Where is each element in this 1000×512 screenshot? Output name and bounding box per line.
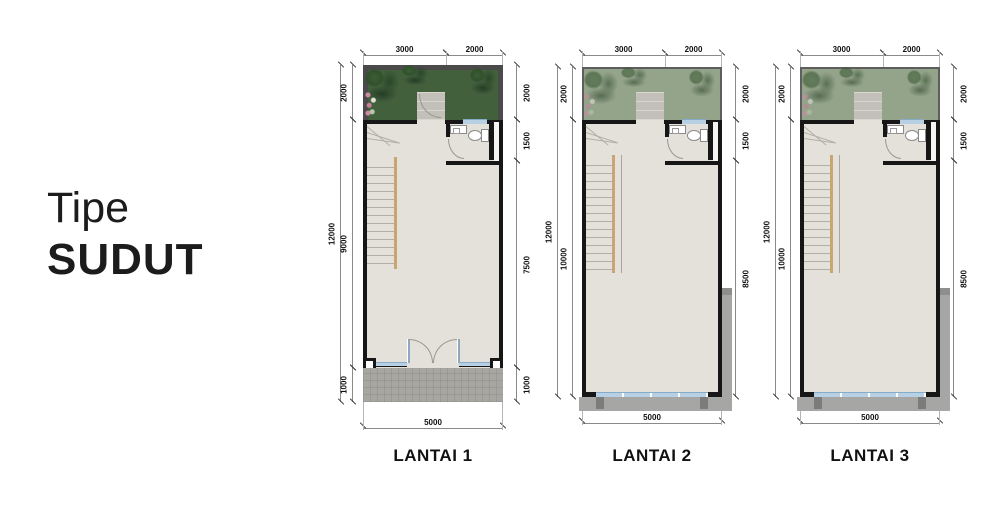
toilet-icon <box>468 130 482 141</box>
dim-left-2000: 2000 <box>572 67 573 120</box>
window <box>814 392 926 397</box>
tree-icon <box>836 65 868 89</box>
stairs <box>586 158 612 270</box>
window <box>459 362 490 366</box>
dim-top-2000: 2000 <box>665 55 722 56</box>
window <box>463 119 487 124</box>
dim-left-1000: 1000 <box>352 368 353 402</box>
floorplan-sheet: Tipe SUDUT 3000 2000 12000 2000 9000 100… <box>0 0 1000 512</box>
extension-line <box>883 51 884 67</box>
bottom-wall <box>800 392 814 397</box>
title-line-1: Tipe <box>47 183 204 234</box>
shaft <box>931 122 936 161</box>
stairs-winders <box>367 124 394 160</box>
column <box>700 397 708 409</box>
dim-left-10000: 10000 <box>572 120 573 397</box>
side-ledge-cap <box>940 288 950 295</box>
dim-right-2000: 2000 <box>735 67 736 120</box>
dim-left-10000: 10000 <box>790 120 791 397</box>
extension-line <box>363 51 364 65</box>
extension-line <box>721 51 722 67</box>
dim-right-2000: 2000 <box>516 65 517 120</box>
bathroom-wall <box>665 161 722 165</box>
extension-line <box>502 402 503 430</box>
sink-icon <box>669 125 686 134</box>
stair-edge <box>839 155 840 273</box>
window <box>900 119 924 124</box>
bathroom-wall <box>926 122 931 160</box>
window <box>682 119 706 124</box>
side-ledge-cap <box>722 288 732 295</box>
bottom-wall <box>582 392 596 397</box>
tree-icon <box>618 65 650 89</box>
bottom-wall <box>708 392 722 397</box>
floor-plan-lantai-3: 3000 2000 12000 2000 10000 2000 1500 850… <box>800 67 940 397</box>
dim-top-2000: 2000 <box>883 55 940 56</box>
dim-right-1000: 1000 <box>516 368 517 402</box>
sink-icon <box>887 125 904 134</box>
toilet-tank-icon <box>918 129 926 142</box>
flower-icon <box>584 93 596 117</box>
entry-porch <box>636 92 664 120</box>
dim-left-12000: 12000 <box>557 67 558 397</box>
dim-bottom-5000: 5000 <box>363 428 503 429</box>
dim-right-1500: 1500 <box>516 120 517 161</box>
dim-right-7500: 7500 <box>516 161 517 368</box>
side-ledge <box>722 288 732 411</box>
window <box>596 392 708 397</box>
plan-label: LANTAI 1 <box>343 446 523 466</box>
stair-stringer <box>830 155 833 273</box>
bathroom-wall <box>883 161 940 165</box>
stair-edge <box>621 155 622 273</box>
shaft <box>713 122 718 161</box>
side-ledge <box>940 288 950 411</box>
dim-left-9000: 9000 <box>352 120 353 368</box>
bottom-wall <box>926 392 940 397</box>
toilet-icon <box>687 130 701 141</box>
extension-line <box>939 51 940 67</box>
column <box>918 397 926 409</box>
column <box>596 397 604 409</box>
flower-icon <box>365 91 377 117</box>
extension-line <box>665 51 666 67</box>
floor-plan-lantai-1: 3000 2000 12000 2000 9000 1000 2000 1500… <box>363 65 503 402</box>
toilet-tank-icon <box>481 129 489 142</box>
door-leaf <box>457 339 460 363</box>
stairs-winders <box>804 124 830 158</box>
plan-label: LANTAI 2 <box>562 446 742 466</box>
stairs <box>804 158 830 270</box>
dim-right-8500: 8500 <box>735 161 736 397</box>
dim-top-3000: 3000 <box>363 55 446 56</box>
tree-icon <box>467 65 499 97</box>
title-line-2: SUDUT <box>47 234 204 286</box>
dim-right-1500: 1500 <box>953 120 954 161</box>
extension-line <box>363 402 364 430</box>
flower-icon <box>802 93 814 117</box>
tree-icon <box>904 67 936 99</box>
bathroom-wall <box>708 122 713 160</box>
entry-porch <box>854 92 882 120</box>
stair-stringer <box>612 155 615 273</box>
dim-left-2000: 2000 <box>790 67 791 120</box>
extension-line <box>502 51 503 65</box>
sink-icon <box>450 125 467 134</box>
stair-stringer <box>394 157 397 269</box>
window <box>376 362 407 366</box>
shaft <box>494 122 499 161</box>
dim-left-12000: 12000 <box>775 67 776 397</box>
right-wall <box>499 120 503 368</box>
column <box>814 397 822 409</box>
toilet-tank-icon <box>700 129 708 142</box>
dim-top-2000: 2000 <box>446 55 503 56</box>
front-pavement <box>363 368 503 402</box>
plan-label: LANTAI 3 <box>780 446 960 466</box>
page-title: Tipe SUDUT <box>47 183 204 286</box>
extension-line <box>446 51 447 65</box>
dim-left-12000: 12000 <box>340 65 341 402</box>
dim-top-3000: 3000 <box>582 55 665 56</box>
dim-right-8500: 8500 <box>953 161 954 397</box>
tree-icon <box>686 67 718 99</box>
dim-bottom-5000: 5000 <box>582 423 722 424</box>
extension-line <box>800 51 801 67</box>
bathroom-wall <box>446 161 503 165</box>
stairs <box>367 160 394 268</box>
floor-plan-lantai-2: 3000 2000 12000 2000 10000 2000 1500 850… <box>582 67 722 397</box>
dim-top-3000: 3000 <box>800 55 883 56</box>
bathroom-wall <box>489 122 494 160</box>
dim-left-2000: 2000 <box>352 65 353 120</box>
stairs-winders <box>586 124 612 158</box>
dim-right-2000: 2000 <box>953 67 954 120</box>
dim-bottom-5000: 5000 <box>800 423 940 424</box>
extension-line <box>582 51 583 67</box>
tree-icon <box>399 63 431 87</box>
dim-right-1500: 1500 <box>735 120 736 161</box>
toilet-icon <box>905 130 919 141</box>
